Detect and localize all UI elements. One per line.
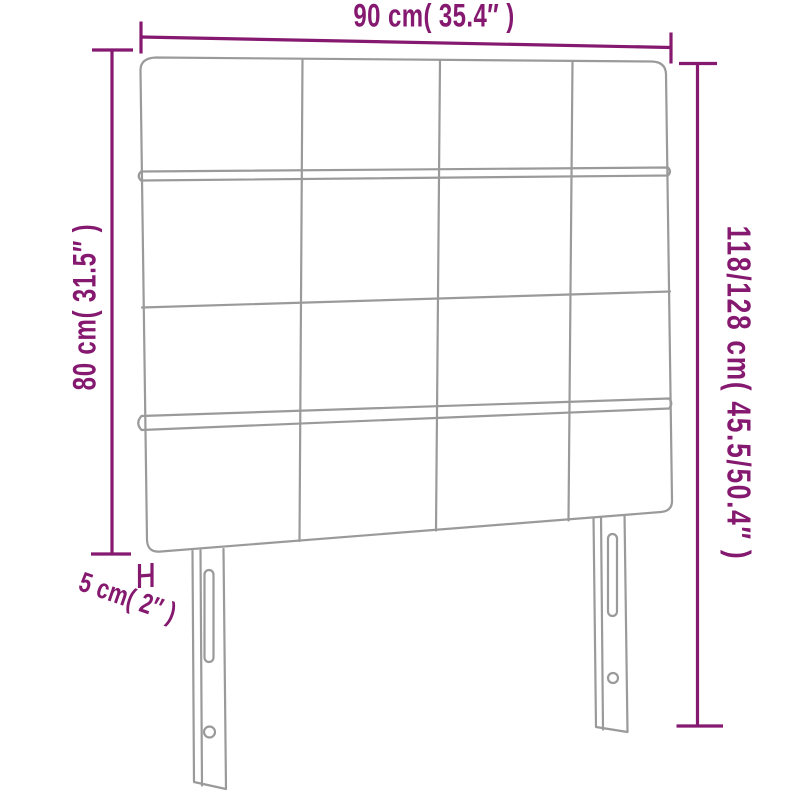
left-leg-edge <box>201 551 203 786</box>
headboard-illustration <box>0 0 800 800</box>
thickness-bar <box>140 575 153 576</box>
left-leg-slot <box>205 570 214 662</box>
dimension-diagram: 90 cm( 35.4″ ) 80 cm( 31.5″ ) 118/128 cm… <box>0 0 800 800</box>
left-leg-hole <box>204 727 215 738</box>
right-height-dimension-label: 118/128 cm( 45.5/50.4″ ) <box>722 226 755 561</box>
left-leg <box>193 549 227 789</box>
width-dimension-label: 90 cm( 35.4″ ) <box>353 1 514 33</box>
left-height-dimension-label: 80 cm( 31.5″ ) <box>70 224 102 391</box>
right-height-dimension-line <box>677 64 724 727</box>
width-dimension-bar <box>141 37 671 48</box>
right-leg <box>594 513 628 732</box>
right-leg-slot <box>608 534 617 616</box>
right-leg-hole <box>608 673 618 683</box>
